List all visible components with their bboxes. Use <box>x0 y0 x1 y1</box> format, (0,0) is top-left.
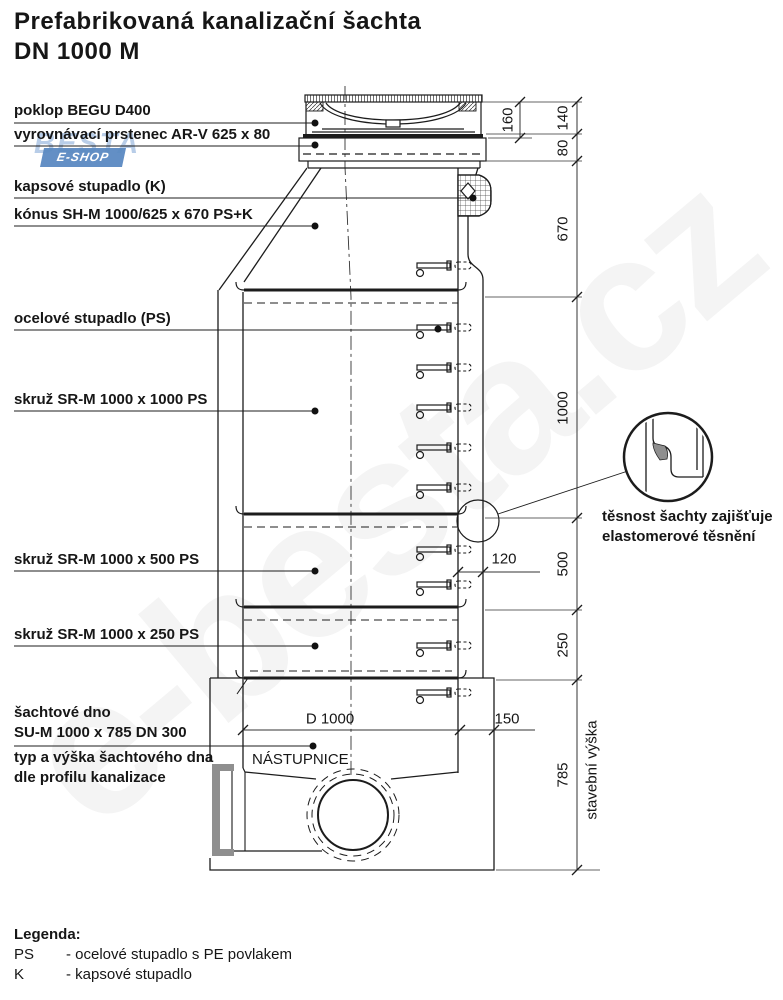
dim-120: 120 <box>491 551 516 568</box>
label-typ-line2: dle profilu kanalizace <box>14 769 166 786</box>
annotation-nastupnice: NÁSTUPNICE <box>252 751 349 768</box>
page-title-line2: DN 1000 M <box>14 38 140 66</box>
leader-dots <box>310 120 477 750</box>
dim-150: 150 <box>494 711 519 728</box>
manhole-base <box>210 670 494 870</box>
legend-heading: Legenda: <box>14 926 81 943</box>
detail-marker-circle <box>457 500 499 542</box>
page: e-besta.cz BESTA E-SHOP <box>0 0 783 1000</box>
label-dno-line1: šachtové dno <box>14 704 111 721</box>
dim-160: 160 <box>500 107 517 132</box>
dim-140: 140 <box>555 105 572 130</box>
seal-note-line1: těsnost šachty zajišťuje <box>602 508 773 525</box>
steel-steps <box>417 261 472 704</box>
detail-circle <box>624 413 712 501</box>
label-konus: kónus SH-M 1000/625 x 670 PS+K <box>14 206 253 223</box>
adjusting-ring <box>299 138 486 168</box>
cone-and-shaft <box>218 168 483 773</box>
label-skruz-250: skruž SR-M 1000 x 250 PS <box>14 626 199 643</box>
dim-80: 80 <box>555 140 572 157</box>
legend-key-ps: PS <box>14 946 34 963</box>
seal-note-line2: elastomerové těsnění <box>602 528 755 545</box>
label-ocelove: ocelové stupadlo (PS) <box>14 310 171 327</box>
dim-250: 250 <box>555 632 572 657</box>
label-skruz-500: skruž SR-M 1000 x 500 PS <box>14 551 199 568</box>
dim-500: 500 <box>555 551 572 576</box>
cover-poklop <box>303 95 483 138</box>
page-title-line1: Prefabrikovaná kanalizační šachta <box>14 8 421 36</box>
dim-1000: 1000 <box>555 391 572 424</box>
label-dno-line2: SU-M 1000 x 785 DN 300 <box>14 724 187 741</box>
dim-building-height: stavební výška <box>584 720 601 819</box>
label-typ-line1: typ a výška šachtového dna <box>14 749 213 766</box>
label-poklop: poklop BEGU D400 <box>14 102 151 119</box>
label-skruz-1000: skruž SR-M 1000 x 1000 PS <box>14 391 207 408</box>
technical-drawing <box>0 0 783 1000</box>
legend-desc-k: - kapsové stupadlo <box>66 966 192 983</box>
label-prstenec: vyrovnávací prstenec AR-V 625 x 80 <box>14 126 270 143</box>
dim-785: 785 <box>555 762 572 787</box>
legend-key-k: K <box>14 966 24 983</box>
center-axis-line <box>345 86 351 778</box>
pipe-socket-stub <box>212 764 245 856</box>
legend-desc-ps: - ocelové stupadlo s PE povlakem <box>66 946 292 963</box>
label-kapsove: kapsové stupadlo (K) <box>14 178 166 195</box>
dim-670: 670 <box>555 216 572 241</box>
dim-inner-diameter: D 1000 <box>306 711 354 728</box>
